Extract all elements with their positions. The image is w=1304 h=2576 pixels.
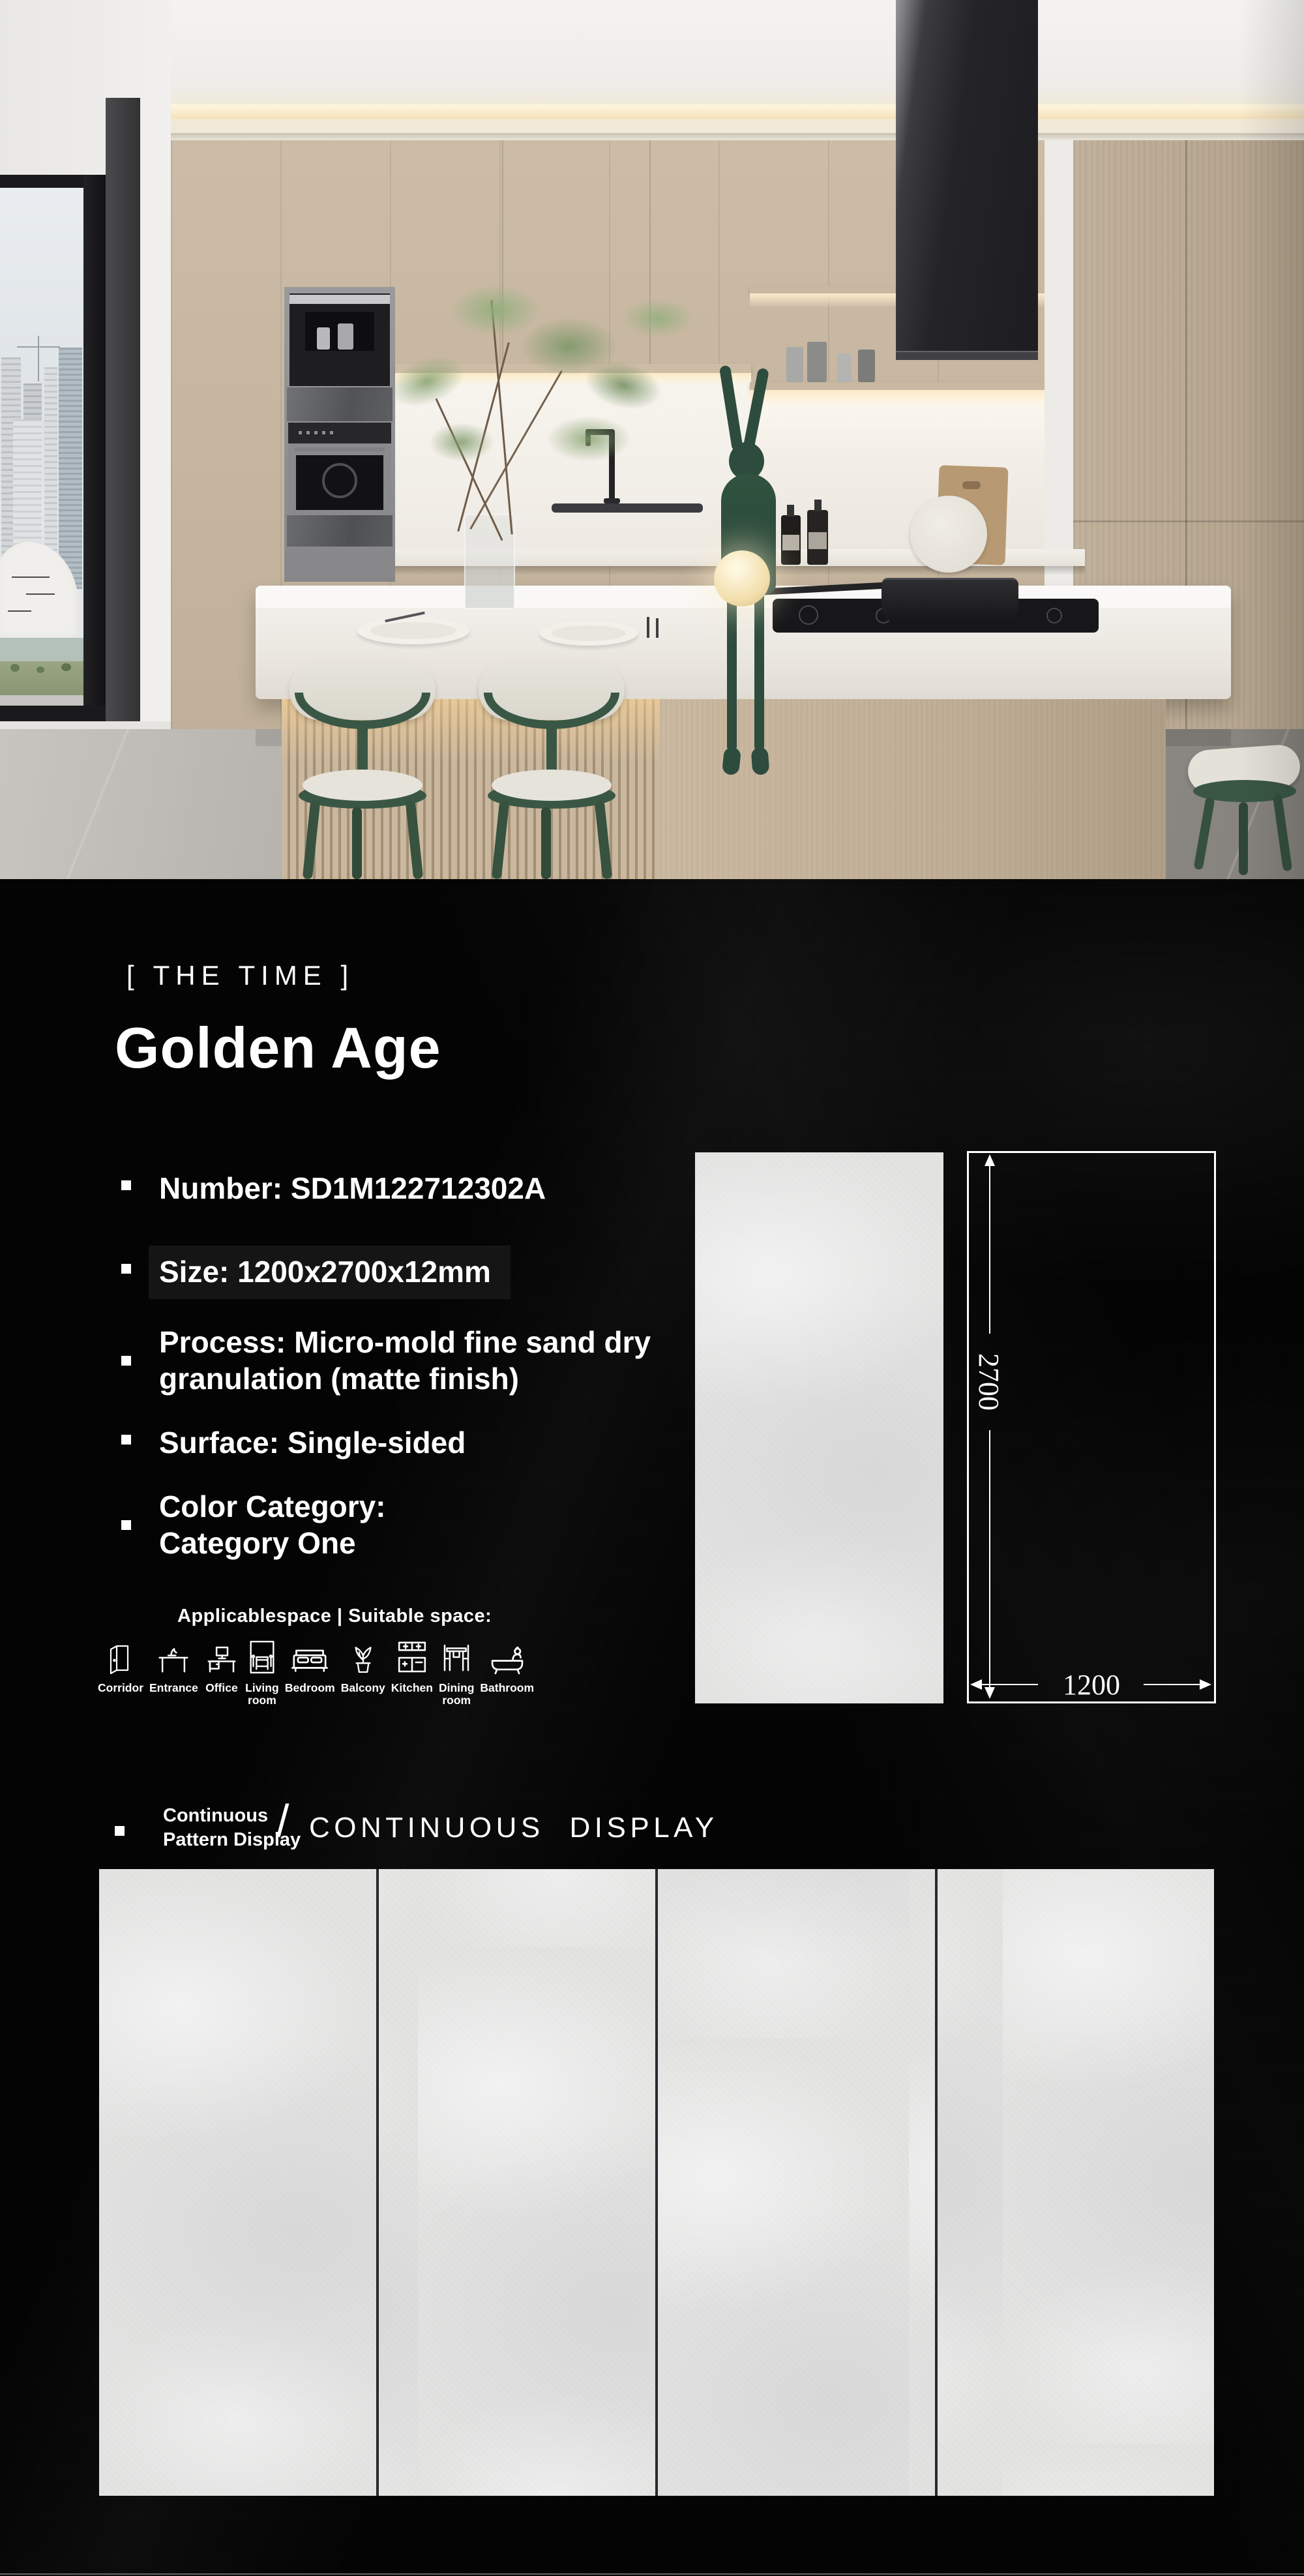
shelf-led-glow: [750, 390, 1045, 407]
bullet-square-icon: [121, 1520, 131, 1530]
brand-logo: [ THE TIME ]: [126, 960, 354, 991]
bar-stool: [289, 660, 436, 879]
rabbit-sculpture: [707, 365, 792, 783]
park-tree: [37, 666, 44, 673]
range-hood-lip: [896, 351, 1038, 360]
space-item-bathroom: Bathroom: [480, 1637, 534, 1694]
round-marble-board: [910, 496, 987, 573]
museum-window-slit: [8, 610, 31, 612]
shelf-jar: [837, 353, 852, 382]
leaf-cluster: [622, 299, 694, 338]
bullet-square-icon: [121, 1264, 131, 1274]
space-item-kitchen: Kitchen: [391, 1637, 433, 1694]
bullet-square-icon: [121, 1356, 131, 1366]
stool-seat-cushion: [492, 770, 612, 801]
tile-panel: [99, 1869, 376, 2496]
bar-stool: [479, 660, 625, 879]
stool-seat-cushion: [303, 770, 422, 801]
shelf-jar: [858, 350, 875, 382]
dining-room-icon: [439, 1637, 474, 1677]
leaf-cluster: [450, 284, 541, 337]
stool-leg: [595, 801, 612, 879]
spec-text: Surface: Single-sided: [159, 1424, 466, 1461]
arrow-down-icon: [985, 1687, 995, 1699]
space-label: Living room: [245, 1682, 279, 1707]
space-label: Bathroom: [480, 1682, 534, 1694]
stool-leg: [541, 807, 551, 879]
window-frame-bottom: [0, 706, 106, 721]
spec-text: Number: SD1M122712302A: [159, 1170, 546, 1206]
coffee-cup: [338, 323, 353, 350]
saucepan: [882, 578, 1018, 625]
city-crane: [38, 336, 39, 382]
tile-pattern-strip: [99, 1869, 1214, 2496]
bullet-square-icon: [115, 1826, 125, 1836]
balcony-icon: [347, 1637, 379, 1677]
hob-ring: [1046, 608, 1062, 623]
space-label: Kitchen: [391, 1682, 433, 1694]
space-label: Bedroom: [285, 1682, 335, 1694]
applicable-space-heading: Applicablespace | Suitable space:: [177, 1606, 492, 1627]
kitchen-icon: [394, 1637, 430, 1677]
stool-leg: [406, 801, 423, 879]
slash-separator: /: [276, 1795, 289, 1847]
museum-window-slit: [26, 593, 55, 595]
space-label: Office: [205, 1682, 238, 1694]
space-item-dining-room: Dining room: [439, 1637, 474, 1707]
spoon: [647, 617, 649, 638]
city-view: [0, 188, 83, 706]
dimension-height-label: 2700: [974, 1336, 1005, 1428]
shelf-jar: [807, 342, 827, 382]
spec-text: Size: 1200x2700x12mm: [149, 1246, 511, 1299]
dim-vertical-line: [989, 1156, 990, 1334]
product-title: Golden Age: [115, 1015, 441, 1081]
bathroom-icon: [487, 1637, 527, 1677]
bottle-label: [808, 532, 827, 549]
applicable-space-row: Corridor Entrance Office Living room Bed…: [98, 1637, 613, 1707]
space-label: Balcony: [341, 1682, 385, 1694]
space-label: Entrance: [149, 1682, 198, 1694]
leaf-cluster: [429, 423, 494, 462]
fork: [656, 618, 659, 638]
open-shelf: [750, 382, 1045, 390]
living-room-icon: [245, 1637, 279, 1677]
office-icon: [204, 1637, 239, 1677]
page-bottom-edge: [0, 2573, 1304, 2575]
dim-vertical-line: [989, 1430, 990, 1696]
corridor-icon: [105, 1637, 136, 1677]
branch-stem: [435, 398, 503, 541]
hob-ring: [799, 605, 818, 625]
bedroom-icon: [288, 1637, 331, 1677]
tile-swatch: [695, 1152, 943, 1703]
continuous-display-title: CONTINUOUS DISPLAY: [309, 1812, 719, 1844]
rabbit-ear: [719, 365, 743, 451]
stool-leg: [1193, 797, 1215, 871]
space-label: Corridor: [98, 1682, 143, 1694]
rabbit-leg: [754, 591, 764, 751]
spec-text: Process: Micro-mold fine sand dry granul…: [159, 1324, 651, 1397]
space-item-living-room: Living room: [245, 1637, 279, 1707]
leaf-cluster: [383, 347, 472, 417]
rabbit-foot: [722, 747, 741, 775]
spec-item-color-category: Color Category: Category One: [121, 1488, 386, 1561]
spec-item-process: Process: Micro-mold fine sand dry granul…: [121, 1324, 651, 1397]
plate-inner: [552, 625, 626, 641]
bottle-cap: [814, 500, 822, 511]
kitchen-photo: [0, 0, 1304, 879]
stool-leg: [492, 801, 509, 879]
space-item-entrance: Entrance: [149, 1637, 198, 1694]
space-item-balcony: Balcony: [341, 1637, 385, 1694]
entrance-icon: [156, 1637, 191, 1677]
space-label: Dining room: [439, 1682, 474, 1707]
spec-item-surface: Surface: Single-sided: [121, 1424, 466, 1461]
city-crane: [17, 346, 60, 348]
spec-text: Color Category: Category One: [159, 1488, 386, 1561]
tile-panel: [938, 1869, 1215, 2496]
city-glass-tower: [59, 348, 82, 589]
stool-leg: [352, 807, 362, 879]
plant-branches: [352, 261, 691, 535]
city-water: [0, 638, 83, 661]
cove-light: [98, 104, 1304, 119]
oven-control-dots: [299, 431, 338, 434]
plate-inner: [370, 622, 456, 639]
space-item-bedroom: Bedroom: [285, 1637, 335, 1694]
coffee-cup: [317, 327, 330, 350]
city-road: [0, 695, 83, 706]
arrow-up-icon: [985, 1154, 995, 1166]
window-frame-right: [83, 175, 106, 721]
tile-panel: [379, 1869, 656, 2496]
product-poster: [ THE TIME ] Golden Age Number: SD1M1227…: [0, 0, 1304, 2576]
vase-water: [466, 569, 514, 608]
photo-right-vignette: [1239, 0, 1304, 879]
dimension-diagram: 2700 1200: [967, 1151, 1216, 1703]
arrow-right-icon: [1200, 1679, 1211, 1690]
tile-panel: [658, 1869, 935, 2496]
dimension-width-label: 1200: [1038, 1668, 1145, 1701]
leaf-cluster: [546, 416, 631, 462]
space-item-corridor: Corridor: [98, 1637, 143, 1694]
cutting-board-handle-hole: [962, 481, 981, 489]
spec-item-size: Size: 1200x2700x12mm: [121, 1253, 511, 1299]
rabbit-light-ball: [714, 550, 770, 607]
range-hood: [896, 0, 1038, 360]
rabbit-ear: [743, 368, 769, 452]
stool-leg: [303, 801, 320, 879]
rabbit-foot: [751, 747, 770, 775]
bullet-square-icon: [121, 1180, 131, 1190]
spec-item-number: Number: SD1M122712302A: [121, 1170, 546, 1206]
museum-window-slit: [12, 577, 50, 578]
bullet-square-icon: [121, 1435, 131, 1445]
park-tree: [61, 663, 71, 671]
rabbit-leg: [727, 591, 737, 751]
space-item-office: Office: [204, 1637, 239, 1694]
ceiling: [0, 0, 1304, 140]
window-reveal: [106, 98, 140, 724]
park-tree: [10, 664, 20, 672]
arrow-left-icon: [970, 1679, 982, 1690]
